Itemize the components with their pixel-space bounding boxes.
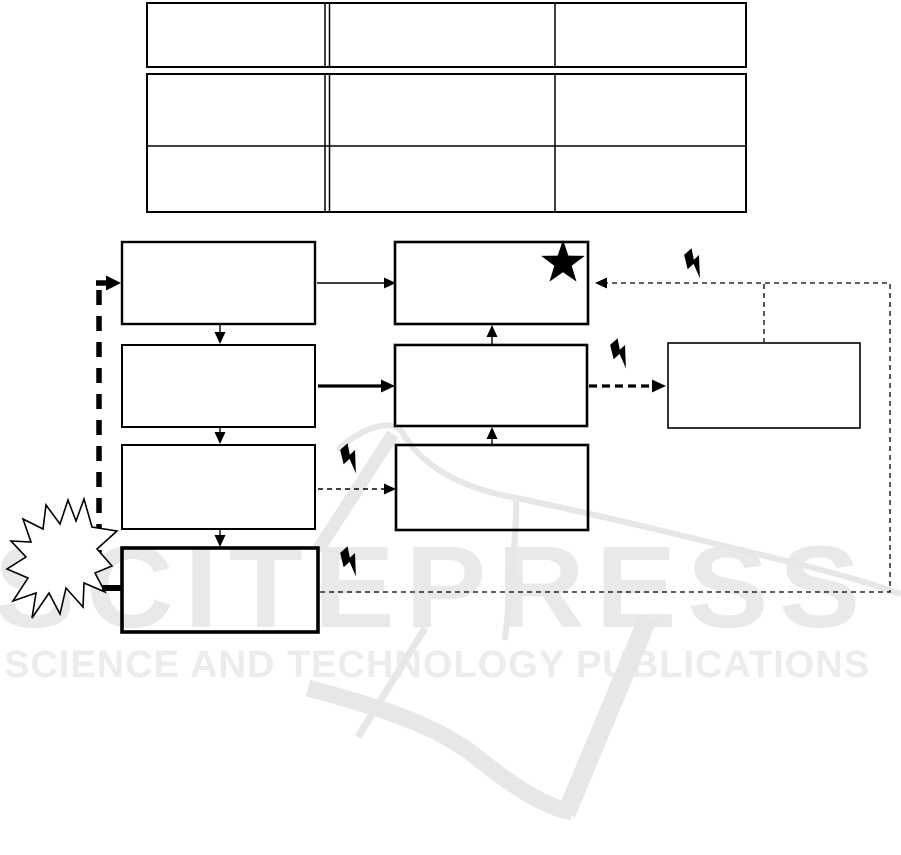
table-header-row <box>147 3 746 67</box>
logo-bottom-swoosh <box>308 688 572 812</box>
arrow-box3-box4-thick <box>318 380 395 393</box>
arrow-box6-box4 <box>487 427 498 445</box>
burst-icon <box>7 499 117 618</box>
lightning-icon-2 <box>335 546 367 579</box>
arrow-box3-box5 <box>215 427 226 444</box>
arrow-box5-box7 <box>215 529 226 547</box>
table-body <box>147 74 746 212</box>
flow-box-8 <box>668 343 860 428</box>
logo-valley-curve <box>505 498 516 640</box>
lightning-icon-4 <box>679 248 711 281</box>
lightning-icon-3 <box>605 338 637 371</box>
flow-box-3 <box>122 345 315 427</box>
arrow-box1-box3 <box>215 325 226 344</box>
feedback-line-left <box>96 276 121 563</box>
paper-page: SCITEPRESS SCIENCE AND TECHNOLOGY PUBLIC… <box>0 0 901 855</box>
flow-box-1 <box>122 242 315 324</box>
arrow-box1-box2 <box>317 278 396 289</box>
logo-up-stroke <box>566 618 648 814</box>
logo-ridge-curve <box>338 426 901 594</box>
flow-box-4 <box>395 345 587 426</box>
flow-box-7 <box>122 548 318 632</box>
figure-canvas <box>0 0 901 855</box>
logo-left-band <box>318 434 393 550</box>
flow-box-5 <box>122 445 315 529</box>
arrow-box4-box2 <box>487 325 498 344</box>
flowchart <box>7 240 890 632</box>
data-table <box>147 3 746 212</box>
arrow-box4-box8-thick-dashed <box>589 380 666 393</box>
feedback-right-arrowhead <box>595 278 607 289</box>
star-icon <box>541 240 585 282</box>
feedback-left-arrowhead <box>106 276 121 291</box>
